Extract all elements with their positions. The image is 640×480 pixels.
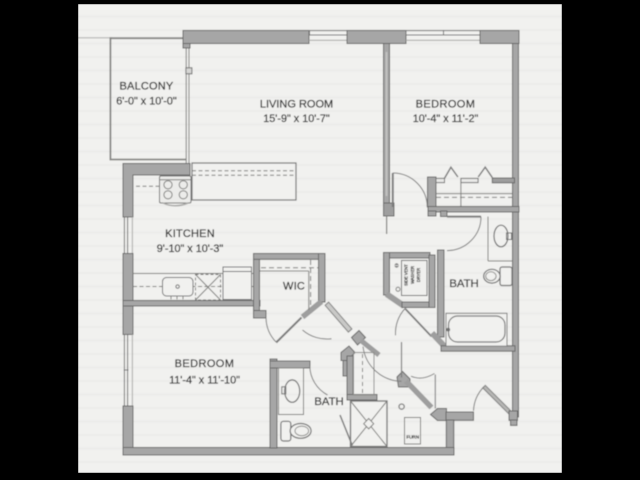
svg-text:BALCONY: BALCONY (120, 81, 174, 93)
svg-text:BEDROOM: BEDROOM (175, 358, 235, 370)
svg-text:WASHER: WASHER (410, 266, 415, 284)
svg-text:11'-4" x 11'-10": 11'-4" x 11'-10" (169, 375, 240, 387)
svg-text:6'-0" x 10'-0": 6'-0" x 10'-0" (116, 96, 177, 108)
svg-text:BATH: BATH (449, 278, 478, 290)
svg-text:FURN: FURN (406, 435, 419, 440)
svg-text:15'-9" x 10'-7": 15'-9" x 10'-7" (263, 113, 330, 125)
svg-text:BATH: BATH (314, 396, 343, 408)
svg-text:10'-4" x 11'-2": 10'-4" x 11'-2" (413, 113, 479, 125)
svg-text:LIVING ROOM: LIVING ROOM (260, 99, 333, 111)
svg-text:KITCHEN: KITCHEN (165, 228, 215, 240)
svg-text:SIDE VENT: SIDE VENT (403, 264, 408, 286)
svg-text:BEDROOM: BEDROOM (416, 99, 476, 111)
svg-text:DRYER: DRYER (416, 268, 421, 282)
svg-text:WIC: WIC (283, 281, 305, 293)
svg-text:9'-10" x 10'-3": 9'-10" x 10'-3" (157, 243, 224, 255)
